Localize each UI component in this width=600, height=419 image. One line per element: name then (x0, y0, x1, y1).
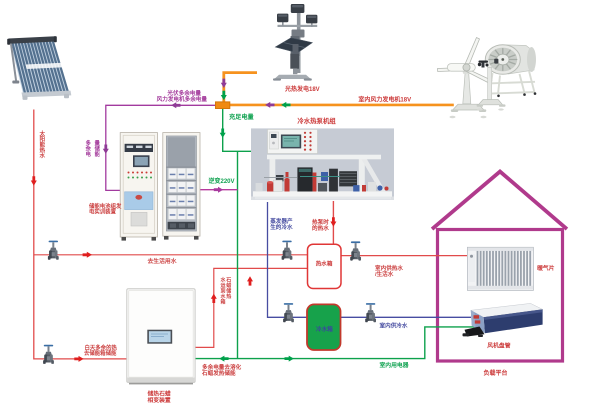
svg-text:暖气片: 暖气片 (537, 264, 555, 272)
svg-text:储热石蜡: 储热石蜡 (147, 390, 171, 398)
svg-text:室内供冷水: 室内供冷水 (380, 321, 408, 329)
svg-text:充足电量: 充足电量 (229, 113, 255, 121)
svg-text:太阳能热水: 太阳能热水 (39, 129, 46, 159)
svg-text:室内供热水: 室内供热水 (375, 264, 403, 272)
svg-text:室内用电器: 室内用电器 (380, 361, 409, 369)
svg-text:多余电量储能: 多余电量储能 (85, 139, 101, 158)
svg-text:热水箱: 热水箱 (316, 260, 333, 268)
svg-text:负载平台: 负载平台 (484, 369, 508, 377)
svg-text:光热发电18V: 光热发电18V (284, 85, 320, 93)
svg-text:室内风力发电机18V: 室内风力发电机18V (358, 96, 411, 104)
svg-text:/生活水: /生活水 (375, 270, 394, 278)
svg-text:相变装置: 相变装置 (148, 396, 171, 404)
svg-text:水运到水箱石蜡储热: 水运到水箱石蜡储热 (220, 277, 232, 306)
svg-text:冷水箱: 冷水箱 (316, 325, 333, 333)
svg-text:的热水: 的热水 (312, 224, 329, 232)
svg-text:逆变220V: 逆变220V (209, 177, 235, 185)
svg-text:电实训装置: 电实训装置 (89, 208, 117, 216)
svg-text:光伏多余电量: 光伏多余电量 (166, 89, 201, 97)
svg-text:冷水热泵机组: 冷水热泵机组 (297, 116, 336, 125)
svg-text:风机盘管: 风机盘管 (487, 342, 510, 350)
svg-text:热泵时: 热泵时 (312, 218, 329, 226)
svg-text:去生活用水: 去生活用水 (148, 257, 177, 265)
svg-text:去储能箱储能: 去储能箱储能 (84, 349, 117, 357)
svg-text:生的冷水: 生的冷水 (270, 223, 293, 231)
svg-text:风力发电机多余电量: 风力发电机多余电量 (157, 95, 208, 103)
svg-text:石蜡发热储能: 石蜡发热储能 (201, 369, 236, 377)
svg-text:多余电量去溶化: 多余电量去溶化 (202, 363, 242, 371)
svg-text:蒸发器产: 蒸发器产 (270, 217, 293, 225)
